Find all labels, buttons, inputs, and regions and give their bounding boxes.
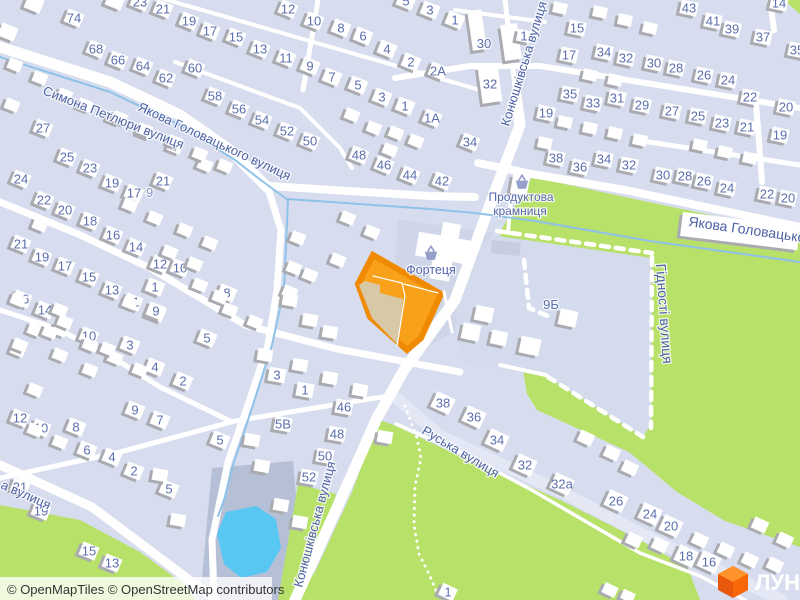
svg-text:68: 68 [89,42,103,57]
svg-text:26: 26 [697,174,711,189]
svg-text:31: 31 [610,91,624,106]
svg-text:17: 17 [562,48,576,63]
svg-text:14: 14 [129,240,143,255]
svg-text:17: 17 [203,24,217,39]
svg-text:23: 23 [715,116,729,131]
svg-text:1: 1 [444,585,451,600]
svg-text:5: 5 [203,331,210,346]
svg-text:27: 27 [665,104,679,119]
svg-text:23: 23 [83,161,97,176]
svg-text:46: 46 [337,400,351,415]
svg-text:20: 20 [779,100,793,115]
svg-text:14: 14 [772,0,786,11]
svg-text:32: 32 [518,458,532,473]
svg-text:30: 30 [477,36,491,51]
svg-text:6: 6 [83,443,90,458]
svg-text:52: 52 [280,124,294,139]
svg-text:13: 13 [105,556,119,571]
svg-text:24: 24 [720,181,734,196]
svg-text:1: 1 [451,13,458,28]
svg-text:15: 15 [229,30,243,45]
svg-text:18: 18 [83,214,97,229]
svg-text:9: 9 [146,185,153,200]
svg-text:21: 21 [740,120,754,135]
svg-text:74: 74 [67,11,81,26]
svg-text:1: 1 [301,383,308,398]
svg-text:8: 8 [337,21,344,36]
svg-text:ЛУН: ЛУН [755,570,800,595]
svg-text:19: 19 [105,176,119,191]
svg-text:46: 46 [377,158,391,173]
svg-text:7: 7 [328,70,335,85]
svg-text:64: 64 [136,59,150,74]
svg-text:2: 2 [179,374,186,389]
svg-text:24: 24 [721,73,735,88]
svg-text:32: 32 [619,51,633,66]
svg-text:35: 35 [790,43,800,58]
svg-text:33: 33 [586,96,600,111]
svg-text:21: 21 [156,2,170,17]
svg-text:3: 3 [378,90,385,105]
svg-text:19: 19 [182,14,196,29]
svg-text:9: 9 [131,403,138,418]
svg-text:34: 34 [597,152,611,167]
svg-text:16: 16 [702,555,716,570]
svg-text:19: 19 [773,128,787,143]
svg-text:16: 16 [106,228,120,243]
svg-text:2: 2 [407,55,414,70]
svg-text:20: 20 [781,191,795,206]
svg-text:60: 60 [188,61,202,76]
svg-text:8: 8 [72,420,79,435]
svg-text:50: 50 [303,134,317,149]
svg-text:43: 43 [682,1,696,16]
svg-text:21: 21 [156,174,170,189]
svg-text:17: 17 [127,186,141,201]
svg-text:20: 20 [58,203,72,218]
svg-text:5: 5 [216,433,223,448]
svg-text:5: 5 [402,0,409,9]
svg-text:15: 15 [82,270,96,285]
svg-text:62: 62 [159,71,173,86]
svg-text:9Б: 9Б [543,297,559,312]
svg-text:36: 36 [467,410,481,425]
svg-text:25: 25 [691,109,705,124]
svg-text:22: 22 [743,90,757,105]
svg-text:24: 24 [643,507,657,522]
svg-text:23: 23 [133,0,147,10]
svg-text:Фортеця: Фортеця [406,263,456,277]
svg-text:32а: 32а [551,477,573,492]
svg-text:7: 7 [156,413,163,428]
svg-text:19: 19 [539,106,553,121]
svg-text:28: 28 [678,169,692,184]
svg-text:34: 34 [490,433,504,448]
svg-text:54: 54 [255,113,269,128]
svg-text:28: 28 [669,61,683,76]
svg-text:41: 41 [706,14,720,29]
svg-text:44: 44 [403,168,417,183]
svg-text:12: 12 [13,411,27,426]
svg-text:22: 22 [760,187,774,202]
svg-text:3: 3 [273,368,280,383]
svg-text:32: 32 [622,158,636,173]
svg-text:22: 22 [37,193,51,208]
svg-text:39: 39 [725,22,739,37]
svg-text:52: 52 [302,470,316,485]
svg-text:2А: 2А [430,64,446,79]
svg-text:4: 4 [151,360,158,375]
svg-text:30: 30 [656,168,670,183]
svg-text:56: 56 [232,102,246,117]
svg-text:1А: 1А [424,111,440,126]
svg-text:42: 42 [435,174,449,189]
svg-text:66: 66 [111,53,125,68]
svg-text:13: 13 [105,283,119,298]
svg-text:38: 38 [549,151,563,166]
svg-text:4: 4 [383,42,390,57]
svg-text:10: 10 [307,14,321,29]
svg-text:3: 3 [126,338,133,353]
svg-text:24: 24 [14,172,28,187]
svg-text:27: 27 [36,121,50,136]
svg-text:9: 9 [306,59,313,74]
svg-text:13: 13 [253,42,267,57]
svg-text:20: 20 [664,519,678,534]
svg-text:19: 19 [35,250,49,265]
svg-text:15: 15 [570,21,584,36]
svg-text:6: 6 [359,29,366,44]
svg-text:36: 36 [573,160,587,175]
svg-text:48: 48 [330,427,344,442]
svg-text:© OpenMapTiles © OpenStreetMap: © OpenMapTiles © OpenStreetMap contribut… [7,582,285,597]
svg-text:26: 26 [697,68,711,83]
svg-text:4: 4 [108,450,115,465]
svg-text:30: 30 [647,56,661,71]
svg-text:17: 17 [58,259,72,274]
svg-text:9: 9 [152,304,159,319]
svg-text:5В: 5В [275,417,291,432]
svg-text:37: 37 [756,30,770,45]
svg-text:21: 21 [14,237,28,252]
svg-text:крамниця: крамниця [493,204,547,218]
svg-text:3: 3 [426,3,433,18]
svg-text:2: 2 [130,464,137,479]
svg-text:1: 1 [401,99,408,114]
svg-text:48: 48 [352,148,366,163]
svg-text:32: 32 [483,77,497,92]
svg-text:29: 29 [635,98,649,113]
svg-text:Продуктова: Продуктова [488,190,553,204]
svg-text:18: 18 [679,549,693,564]
svg-text:1: 1 [151,280,158,295]
svg-text:5: 5 [354,78,361,93]
svg-text:35: 35 [563,87,577,102]
svg-text:12: 12 [281,2,295,17]
svg-text:34: 34 [597,45,611,60]
svg-text:25: 25 [60,150,74,165]
svg-text:26: 26 [609,494,623,509]
svg-text:11: 11 [279,51,293,66]
svg-text:38: 38 [436,396,450,411]
svg-text:15: 15 [82,544,96,559]
svg-text:58: 58 [208,89,222,104]
svg-text:5: 5 [165,482,172,497]
svg-text:34: 34 [463,135,477,150]
